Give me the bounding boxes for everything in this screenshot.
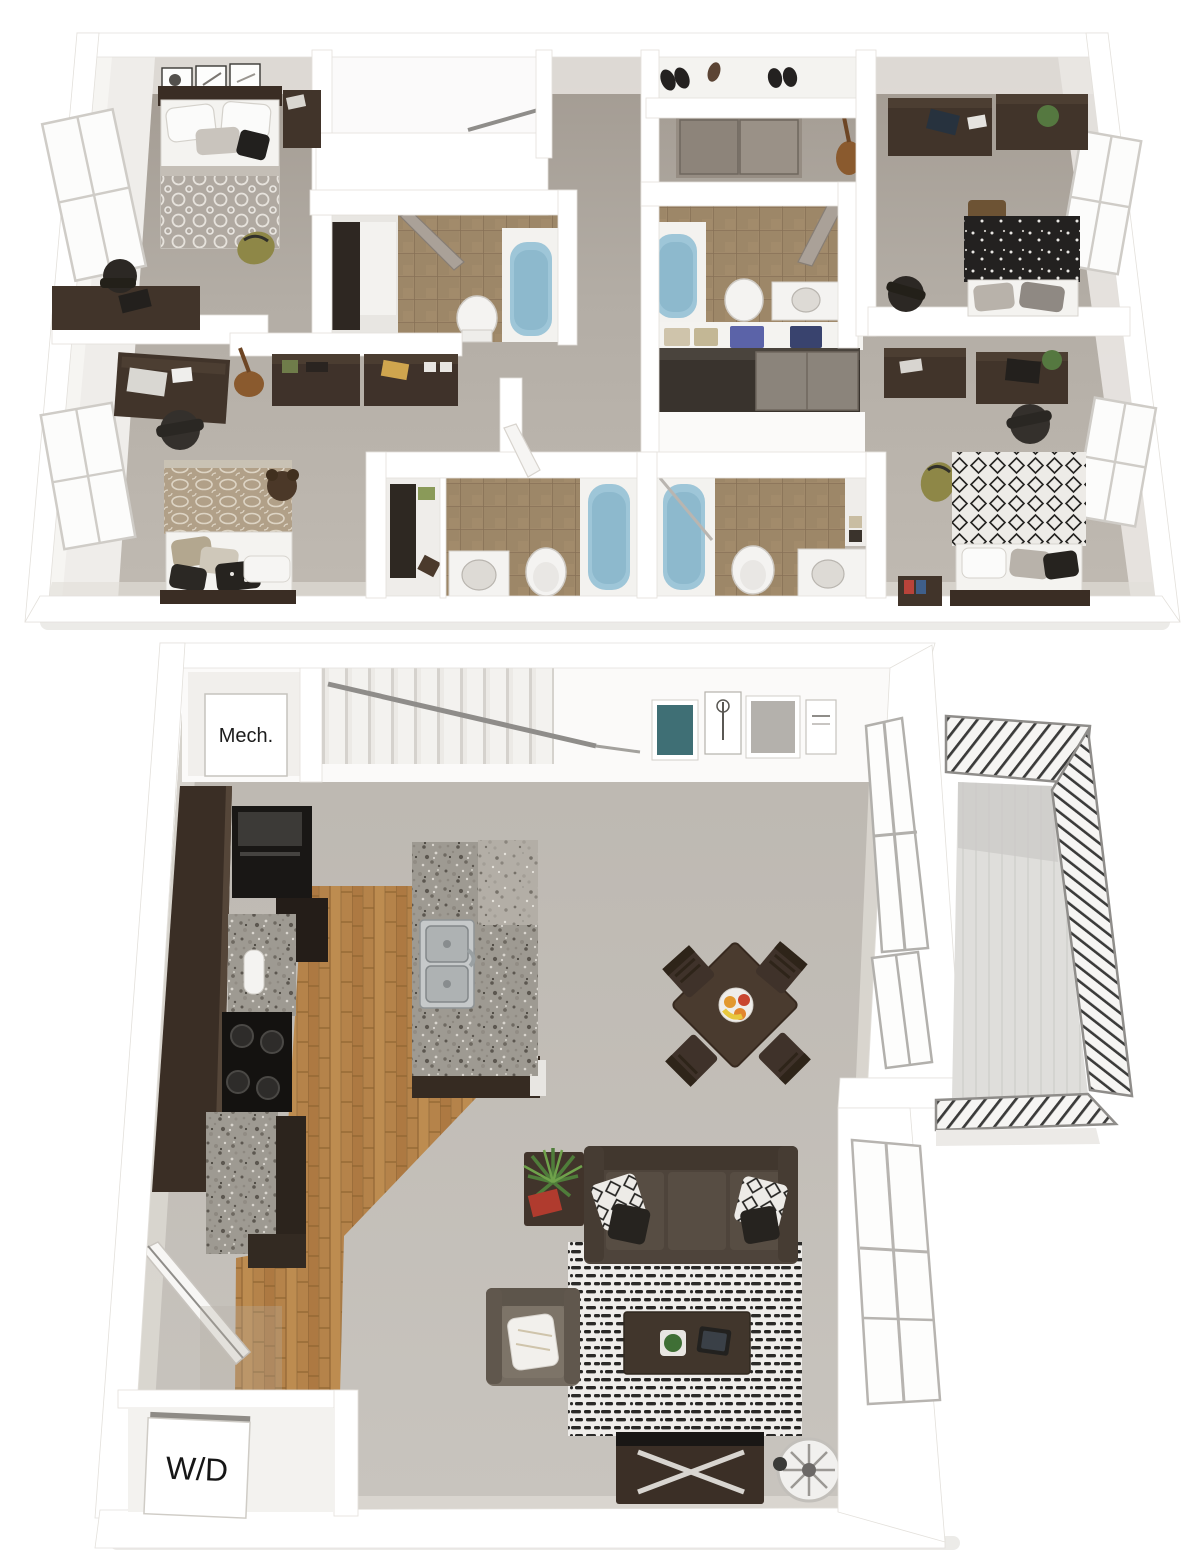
svg-text:Mech.: Mech. — [219, 725, 273, 747]
svg-text:W/D: W/D — [165, 1450, 229, 1489]
